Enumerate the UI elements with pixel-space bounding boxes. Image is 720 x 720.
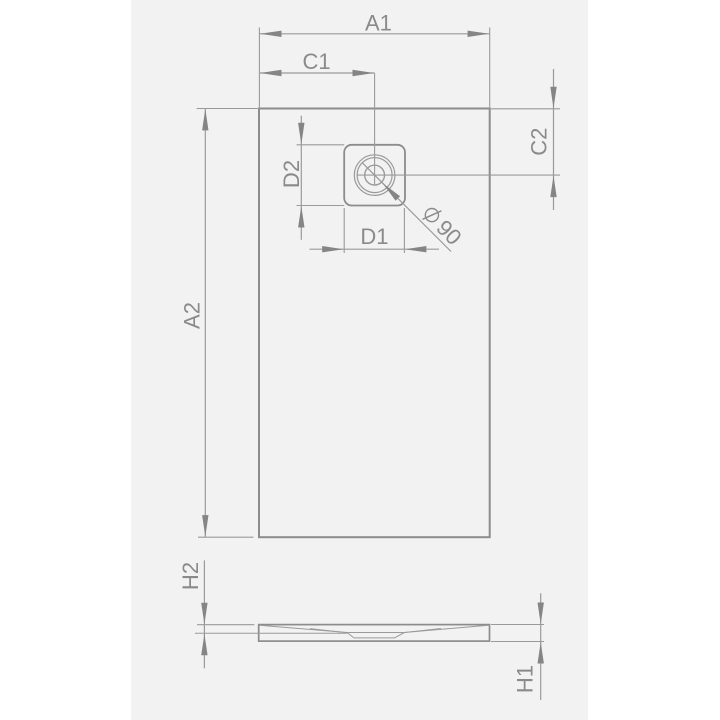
svg-text:A1: A1 — [365, 11, 392, 36]
svg-text:D1: D1 — [360, 224, 388, 249]
svg-text:H1: H1 — [512, 665, 537, 693]
svg-text:C2: C2 — [526, 128, 551, 156]
svg-text:D2: D2 — [279, 160, 304, 188]
svg-text:C1: C1 — [302, 49, 330, 74]
svg-text:H2: H2 — [178, 562, 203, 590]
svg-text:A2: A2 — [180, 302, 205, 329]
